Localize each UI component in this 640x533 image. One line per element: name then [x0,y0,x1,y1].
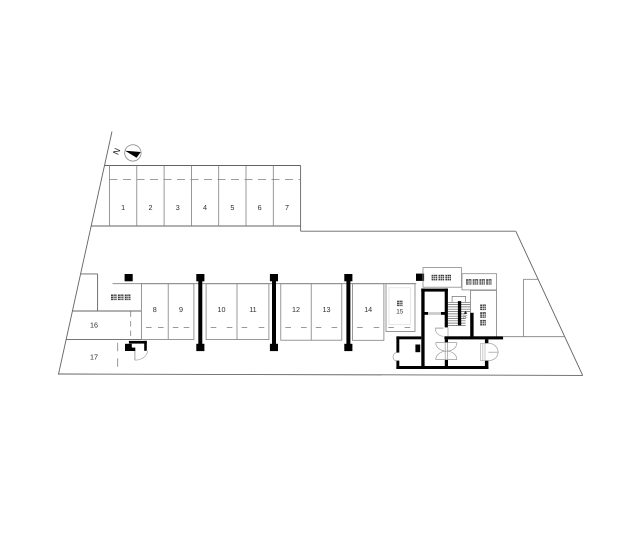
svg-text:13: 13 [323,305,331,314]
svg-text:1: 1 [121,203,125,212]
svg-text:3: 3 [176,203,180,212]
svg-text:2: 2 [148,203,152,212]
svg-text:9: 9 [179,305,183,314]
svg-text:15: 15 [396,308,404,315]
svg-text:12: 12 [292,305,300,314]
svg-text:14: 14 [364,305,372,314]
svg-text:6: 6 [258,203,262,212]
svg-text:5: 5 [230,203,234,212]
svg-text:4: 4 [203,203,207,212]
svg-text:11: 11 [249,305,256,314]
svg-text:17: 17 [90,353,98,362]
svg-text:2F: 2F [462,315,467,320]
svg-text:7: 7 [285,203,289,212]
svg-text:10: 10 [218,305,226,314]
svg-text:8: 8 [153,305,157,314]
svg-text:16: 16 [90,321,98,330]
